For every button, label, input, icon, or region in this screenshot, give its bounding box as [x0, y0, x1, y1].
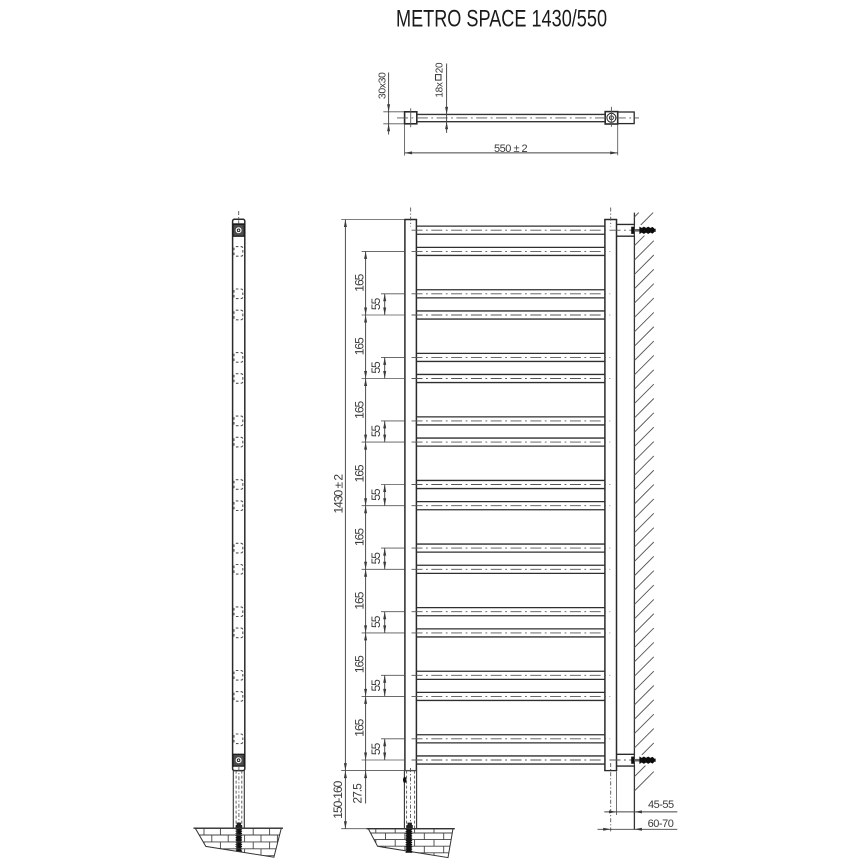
svg-text:165: 165 [353, 528, 367, 546]
svg-text:165: 165 [353, 273, 367, 291]
svg-text:55: 55 [369, 552, 383, 565]
svg-text:55: 55 [369, 425, 383, 438]
svg-text:45-55: 45-55 [648, 799, 674, 811]
svg-text:165: 165 [353, 655, 367, 673]
svg-text:150-160: 150-160 [331, 780, 345, 818]
svg-text:550 ± 2: 550 ± 2 [494, 143, 528, 155]
svg-text:27.5: 27.5 [351, 783, 365, 804]
svg-text:55: 55 [369, 615, 383, 628]
svg-text:165: 165 [353, 337, 367, 355]
svg-text:20: 20 [435, 62, 446, 73]
svg-text:55: 55 [369, 297, 383, 310]
svg-text:60-70: 60-70 [648, 818, 674, 830]
svg-text:55: 55 [369, 742, 383, 755]
svg-text:165: 165 [353, 464, 367, 482]
svg-text:165: 165 [353, 400, 367, 418]
svg-text:30x30: 30x30 [376, 72, 388, 99]
svg-text:55: 55 [369, 361, 383, 374]
svg-text:165: 165 [353, 591, 367, 609]
svg-text:1430 ± 2: 1430 ± 2 [332, 474, 346, 514]
svg-text:165: 165 [353, 718, 367, 736]
svg-text:METRO SPACE 1430/550: METRO SPACE 1430/550 [396, 5, 607, 32]
svg-text:55: 55 [369, 679, 383, 692]
svg-text:55: 55 [369, 488, 383, 501]
svg-text:18x: 18x [435, 82, 446, 98]
